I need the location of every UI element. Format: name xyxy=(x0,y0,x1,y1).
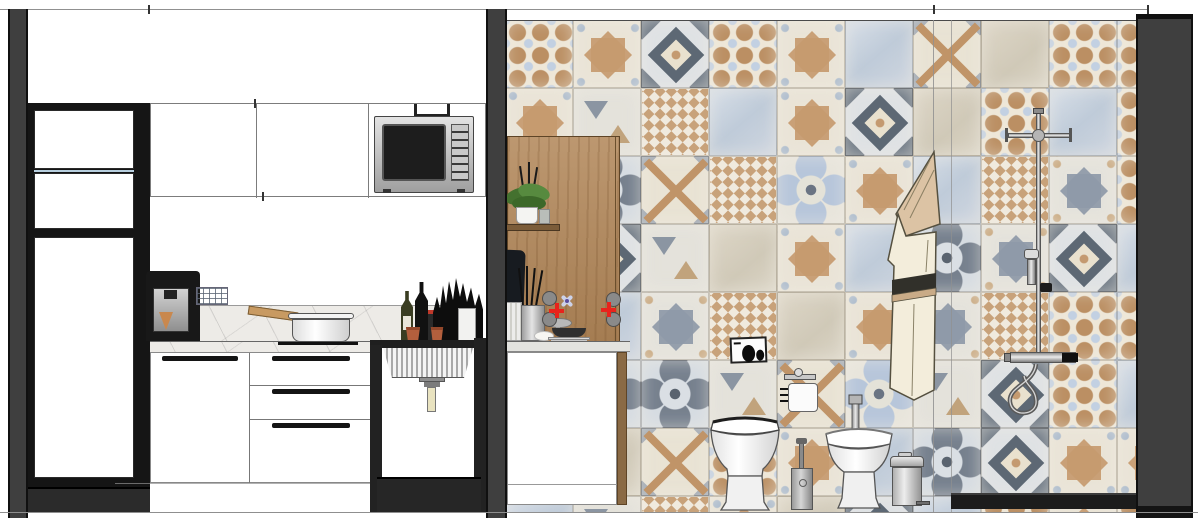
elevation-drawing xyxy=(0,0,1200,518)
cabinet-divider-line xyxy=(249,353,250,483)
wall-tile xyxy=(505,20,573,88)
plinth-line xyxy=(115,483,372,484)
shower-finial xyxy=(1033,108,1044,114)
tall-cabinet-carcass xyxy=(28,103,150,487)
flush-plate xyxy=(730,336,768,363)
timber-side-panel xyxy=(617,352,627,505)
wall-tile xyxy=(641,292,709,360)
wall-tile xyxy=(641,20,709,88)
wall-tile xyxy=(1049,20,1117,88)
lavender-cross-icon xyxy=(559,293,574,308)
hand-shower-body xyxy=(1027,259,1036,285)
dimension-tick xyxy=(254,99,256,108)
shower-hose xyxy=(1000,358,1060,430)
brush-canister xyxy=(791,468,813,510)
wall-tile xyxy=(641,156,709,224)
drawer-handle xyxy=(272,389,350,394)
bin-lid xyxy=(890,456,924,467)
sink-basin-section xyxy=(383,348,473,378)
wall-tile xyxy=(573,20,641,88)
roll-rib xyxy=(780,394,788,396)
wall-tile xyxy=(845,20,913,88)
shower-arm-end xyxy=(1005,128,1008,142)
roll-rib xyxy=(780,388,788,390)
striped-crock xyxy=(506,302,522,341)
brush-knob xyxy=(796,438,807,444)
wall-tile xyxy=(1049,156,1117,224)
divider-wall-section xyxy=(486,9,507,518)
wall-tile xyxy=(1117,224,1136,292)
wall-tile xyxy=(641,360,709,428)
right-wall-section xyxy=(1136,14,1193,518)
dimension-tick xyxy=(933,5,935,14)
shower-arm-end xyxy=(1069,128,1072,142)
wall-tile xyxy=(1049,292,1117,360)
roll-rib xyxy=(780,400,788,402)
ceiling-line xyxy=(0,9,1148,10)
utensil xyxy=(526,266,528,308)
wall-tile xyxy=(1117,428,1136,496)
wall-tile xyxy=(913,20,981,88)
wall-tile xyxy=(981,428,1049,496)
microwave-foot xyxy=(457,189,465,193)
hand-shower-head xyxy=(1024,249,1039,259)
flush-button-large xyxy=(742,345,756,362)
door-handle xyxy=(162,356,238,361)
sink-trap-pipe xyxy=(427,387,436,412)
red-plus-icon xyxy=(601,302,616,317)
microwave-control-panel xyxy=(451,124,469,181)
flush-plate-mark xyxy=(734,342,741,344)
canister-emblem xyxy=(799,479,807,487)
drawer-handle xyxy=(272,423,350,428)
cabinet-divider-line xyxy=(368,104,369,198)
tp-holder-knob xyxy=(794,368,803,377)
wall-tile xyxy=(845,88,913,156)
dimension-tick xyxy=(148,5,150,14)
sink-counter-cut xyxy=(370,340,486,348)
wall-tile xyxy=(981,20,1049,88)
wall-tile xyxy=(641,496,709,512)
dimension-tick xyxy=(1147,5,1149,14)
toast-rack xyxy=(196,287,228,305)
wall-tile xyxy=(1117,292,1136,360)
slider-clamp xyxy=(1040,283,1052,292)
wall-tile xyxy=(709,224,777,292)
wall-tile xyxy=(1049,224,1117,292)
cabinet-divider-line xyxy=(256,104,257,198)
refrigerator-door xyxy=(34,237,134,478)
espresso-group-head xyxy=(164,290,177,299)
wall-tile xyxy=(1117,156,1136,224)
microwave-foot xyxy=(383,189,391,193)
hob xyxy=(278,342,358,345)
wall-tile xyxy=(709,156,777,224)
shower-riser-pipe xyxy=(1036,112,1041,360)
plinth-line xyxy=(508,484,618,485)
wall-tile xyxy=(1117,88,1136,156)
tall-cabinet-plinth xyxy=(28,487,150,512)
base-cabinets xyxy=(150,353,372,483)
floor-line xyxy=(0,512,1198,513)
wall-tile xyxy=(913,88,981,156)
wall-tile xyxy=(641,224,709,292)
tall-cabinet-door-mid xyxy=(34,173,134,229)
wall-tile xyxy=(777,224,845,292)
storage-jar xyxy=(458,308,476,341)
saucepan-body xyxy=(292,319,350,342)
mixer-handle xyxy=(1062,353,1078,362)
wall-shelf xyxy=(506,224,560,231)
wall-tile xyxy=(1049,428,1117,496)
bathrobe xyxy=(884,148,944,404)
tall-cabinet-door-upper xyxy=(34,110,134,169)
drawer-line xyxy=(249,419,373,420)
mid-base-cabinet xyxy=(507,352,617,505)
wall-tile xyxy=(1049,88,1117,156)
microwave-door-window xyxy=(382,124,446,181)
microwave xyxy=(374,116,474,193)
dark-bowl xyxy=(552,328,586,337)
shower-arm-joint xyxy=(1032,129,1045,142)
small-vase xyxy=(539,209,550,224)
bin-pedal xyxy=(916,501,930,505)
wall-tile xyxy=(1117,20,1136,88)
wall-tile xyxy=(777,292,845,360)
wall-tile xyxy=(709,88,777,156)
shower-curb xyxy=(951,493,1136,509)
bidet xyxy=(820,394,896,512)
toilet-paper-roll xyxy=(788,383,818,412)
espresso-machine xyxy=(146,271,200,341)
tile-wall-top-edge xyxy=(505,20,1136,21)
left-wall-section xyxy=(8,9,28,518)
wall-tile xyxy=(641,428,709,496)
wall-tile xyxy=(709,20,777,88)
wall-tile xyxy=(1117,360,1136,428)
wall-tile xyxy=(777,20,845,88)
wall-tile xyxy=(777,156,845,224)
mid-countertop xyxy=(507,341,630,352)
flush-button-small xyxy=(756,349,764,360)
brush-handle xyxy=(799,442,804,470)
cabinet-shelf-line xyxy=(34,170,134,172)
toilet xyxy=(705,414,785,512)
drawer-line xyxy=(249,385,373,386)
dimension-tick xyxy=(262,192,264,201)
wall-tile xyxy=(777,88,845,156)
wall-tile xyxy=(641,88,709,156)
wall-corner-line-2 xyxy=(951,20,952,512)
sink-cabinet-plinth xyxy=(377,477,481,512)
drawer-handle xyxy=(272,356,350,361)
plant-pot xyxy=(516,207,538,224)
